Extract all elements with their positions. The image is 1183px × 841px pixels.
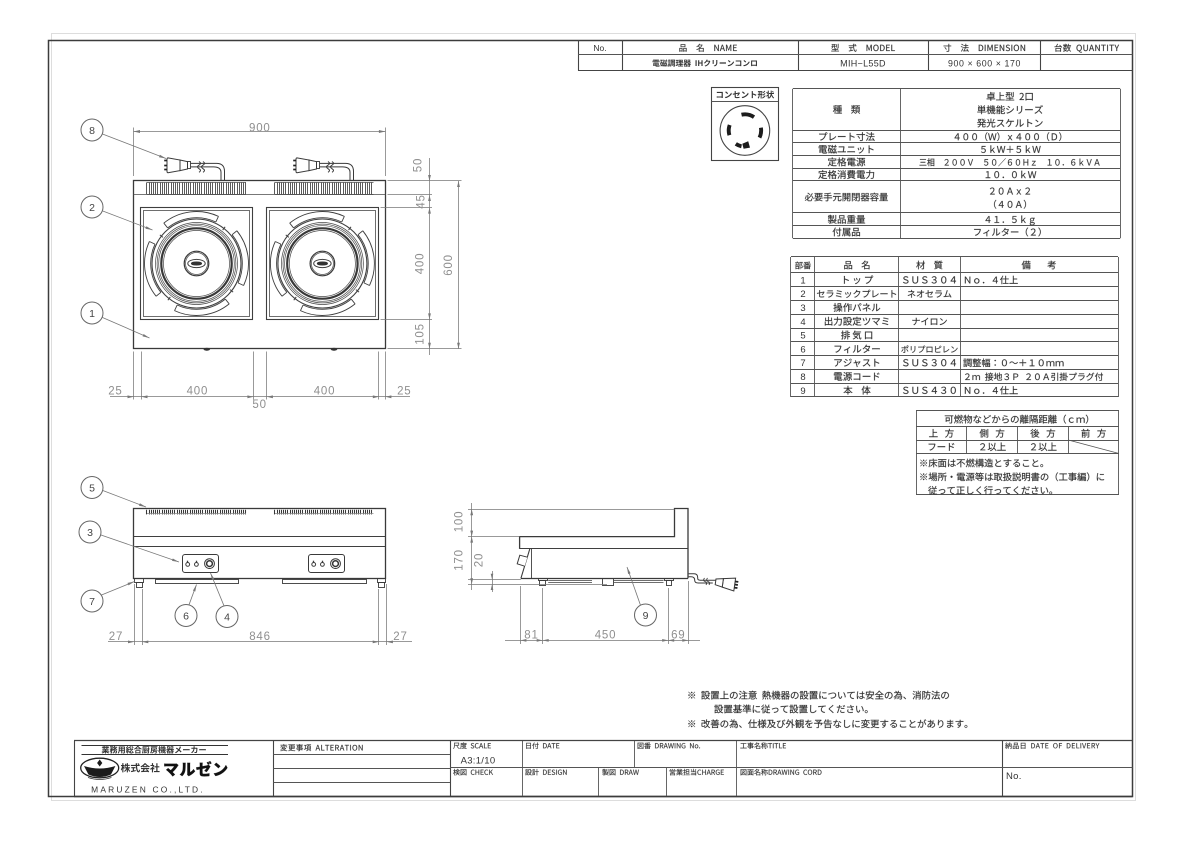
svg-text:9: 9 <box>643 610 649 622</box>
svg-text:50: 50 <box>413 158 425 172</box>
svg-text:105: 105 <box>415 323 427 345</box>
svg-text:69: 69 <box>671 630 685 642</box>
svg-text:7: 7 <box>800 358 805 369</box>
svg-text:170: 170 <box>454 549 466 571</box>
svg-text:400: 400 <box>187 385 209 397</box>
svg-text:MIH−L55D: MIH−L55D <box>840 59 886 69</box>
svg-text:25: 25 <box>397 385 411 397</box>
svg-text:6: 6 <box>800 344 805 355</box>
svg-text:81: 81 <box>524 630 538 642</box>
svg-text:600: 600 <box>443 254 455 276</box>
svg-text:50: 50 <box>252 399 266 411</box>
svg-text:900: 900 <box>249 122 271 134</box>
svg-text:No.: No. <box>1006 771 1022 782</box>
svg-text:27: 27 <box>109 631 123 643</box>
svg-text:8: 8 <box>800 372 805 383</box>
svg-text:25: 25 <box>108 385 122 397</box>
svg-text:MARUZEN CO.,LTD.: MARUZEN CO.,LTD. <box>91 785 205 795</box>
svg-text:1: 1 <box>89 308 95 320</box>
svg-text:400: 400 <box>415 253 427 275</box>
svg-text:7: 7 <box>89 596 95 608</box>
svg-text:A3:1/10: A3:1/10 <box>461 756 496 767</box>
svg-text:1: 1 <box>800 275 805 286</box>
svg-text:45: 45 <box>416 194 428 208</box>
svg-text:4: 4 <box>800 317 805 328</box>
svg-text:6: 6 <box>183 610 189 622</box>
svg-text:9: 9 <box>800 386 805 397</box>
svg-text:3: 3 <box>87 527 93 539</box>
svg-text:3: 3 <box>800 303 805 314</box>
svg-text:5: 5 <box>800 331 805 342</box>
svg-text:20: 20 <box>474 553 486 567</box>
svg-text:400: 400 <box>314 385 336 397</box>
svg-text:5: 5 <box>89 482 95 494</box>
svg-text:900 × 600 × 170: 900 × 600 × 170 <box>948 59 1021 69</box>
svg-text:4: 4 <box>224 611 230 623</box>
svg-text:450: 450 <box>595 630 617 642</box>
svg-text:100: 100 <box>454 511 466 533</box>
svg-text:2: 2 <box>800 289 805 300</box>
svg-text:846: 846 <box>249 631 271 643</box>
svg-text:2: 2 <box>89 202 95 214</box>
svg-text:27: 27 <box>393 631 407 643</box>
svg-text:8: 8 <box>89 125 95 137</box>
svg-text:No.: No. <box>593 43 606 53</box>
